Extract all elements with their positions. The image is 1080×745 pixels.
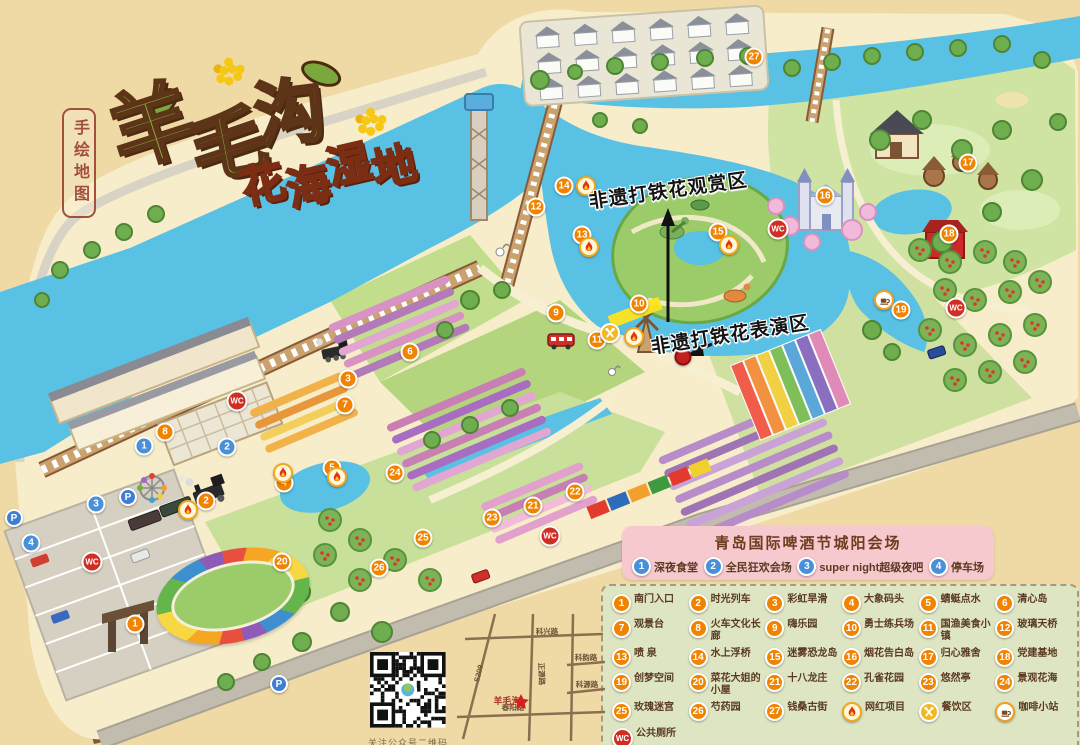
legend-item: 12玻璃天桥 [995, 619, 1068, 642]
beer-item-label: 深夜食堂 [654, 559, 698, 575]
map-marker-2[interactable]: 2 [197, 492, 216, 511]
map-marker-27[interactable]: 27 [745, 48, 764, 67]
map-marker-p-P[interactable]: P [119, 488, 137, 506]
legend-item-label: 菜花大姐的小屋 [711, 673, 762, 696]
map-marker-flame[interactable] [579, 237, 599, 257]
map-marker-flame[interactable] [719, 235, 739, 255]
legend-box: 1南门入口2时光列车3彩虹旱滑4大象码头5蜻蜓点水6清心岛7观景台8火车文化长廊… [601, 584, 1079, 745]
legend-item: 网红项目 [842, 702, 915, 722]
legend-item-label: 网红项目 [865, 702, 905, 714]
map-marker-10[interactable]: 10 [630, 295, 649, 314]
legend-item-label: 喷 泉 [634, 648, 657, 660]
map-marker-wc-WC[interactable]: WC [946, 298, 967, 319]
legend-item: 19创梦空间 [612, 673, 685, 696]
legend-item-label: 时光列车 [711, 594, 751, 606]
legend-item-label: 芍药园 [711, 702, 741, 714]
beer-festival-items: 1深夜食堂2全民狂欢会场3super night超级夜吧4停车场 [632, 557, 984, 576]
map-marker-16[interactable]: 16 [816, 187, 835, 206]
road-label: 科兴路 [536, 626, 559, 636]
beer-festival-item: 4停车场 [929, 557, 984, 576]
road-label: 正源路 [537, 662, 548, 685]
legend-item: 18党建基地 [995, 648, 1068, 667]
legend-item-label: 迷雾恐龙岛 [787, 648, 837, 660]
legend-item: 3彩虹旱滑 [765, 594, 838, 613]
legend-item-label: 归心雅舍 [941, 648, 981, 660]
map-marker-24[interactable]: 24 [386, 464, 405, 483]
qr-code[interactable] [368, 652, 448, 733]
legend-item-label: 大象码头 [864, 594, 904, 606]
map-marker-1[interactable]: 1 [126, 615, 145, 634]
legend-item: WC公共厕所 [612, 728, 685, 745]
legend-item-label: 钱桑古街 [787, 702, 827, 714]
road-label: 科源路 [576, 679, 599, 689]
map-marker-20[interactable]: 20 [273, 553, 292, 572]
beer-festival-item: 2全民狂欢会场 [704, 557, 792, 576]
map-marker-flame[interactable] [273, 463, 293, 483]
beer-festival-item: 3super night超级夜吧 [797, 557, 923, 576]
beer-festival-box: 青岛国际啤酒节城阳会场 1深夜食堂2全民狂欢会场3super night超级夜吧… [622, 526, 994, 580]
map-marker-12[interactable]: 12 [527, 198, 546, 217]
beer-item-label: 停车场 [951, 559, 984, 575]
map-marker-23[interactable]: 23 [483, 509, 502, 528]
map-marker-blue-2[interactable]: 2 [218, 438, 237, 457]
legend-item: 1南门入口 [612, 594, 685, 613]
legend-item-label: 水上浮桥 [711, 648, 751, 660]
legend-item: 27钱桑古街 [765, 702, 838, 722]
legend-item-label: 国渔美食小镇 [941, 619, 992, 642]
legend-item: 7观景台 [612, 619, 685, 642]
legend-item-label: 党建基地 [1017, 648, 1057, 660]
legend-item-label: 蜻蜓点水 [941, 594, 981, 606]
beer-festival-item: 1深夜食堂 [632, 557, 698, 576]
legend-item: 17归心雅舍 [919, 648, 992, 667]
legend-item-label: 火车文化长廊 [711, 619, 762, 642]
legend-grid: 1南门入口2时光列车3彩虹旱滑4大象码头5蜻蜓点水6清心岛7观景台8火车文化长廊… [612, 594, 1068, 745]
legend-item: 20菜花大姐的小屋 [689, 673, 762, 696]
legend-item: 4大象码头 [842, 594, 915, 613]
legend-item: 2时光列车 [689, 594, 762, 613]
road-label: S209 [472, 664, 485, 683]
map-marker-7[interactable]: 7 [336, 396, 355, 415]
legend-item: 5蜻蜓点水 [919, 594, 992, 613]
map-marker-flame[interactable] [178, 500, 198, 520]
legend-item: 咖啡小站 [995, 702, 1068, 722]
legend-item-label: 勇士练兵场 [864, 619, 914, 631]
hand-drawn-map-label: 手绘地图 [62, 108, 96, 218]
map-marker-18[interactable]: 18 [940, 225, 959, 244]
legend-item: 22孔雀花园 [842, 673, 915, 696]
legend-item-label: 景观花海 [1017, 673, 1057, 685]
legend-item: 21十八龙庄 [765, 673, 838, 696]
road-label: 科韵路 [575, 652, 598, 662]
legend-item-label: 玫瑰迷宫 [634, 702, 674, 714]
map-screenshot: 1234567891011121314151617181920212223242… [0, 0, 1080, 745]
map-marker-coffee[interactable] [874, 290, 894, 310]
map-marker-8[interactable]: 8 [156, 423, 175, 442]
map-marker-wc-WC[interactable]: WC [768, 219, 789, 240]
legend-item-label: 烟花告白岛 [864, 648, 914, 660]
legend-item: 9嗨乐园 [765, 619, 838, 642]
map-marker-flame[interactable] [327, 467, 347, 487]
map-marker-p-P[interactable]: P [270, 675, 288, 693]
map-marker-food[interactable] [600, 323, 620, 343]
legend-item: 13喷 泉 [612, 648, 685, 667]
beer-item-label: 全民狂欢会场 [726, 559, 792, 575]
map-marker-3[interactable]: 3 [339, 370, 358, 389]
legend-item: 23悠然亭 [919, 673, 992, 696]
map-marker-wc-WC[interactable]: WC [227, 391, 248, 412]
legend-item: 25玫瑰迷宫 [612, 702, 685, 722]
legend-item: 11国渔美食小镇 [919, 619, 992, 642]
legend-item-label: 彩虹旱滑 [787, 594, 827, 606]
map-marker-blue-4[interactable]: 4 [22, 534, 41, 553]
map-marker-flame[interactable] [624, 327, 644, 347]
legend-item-label: 孔雀花园 [864, 673, 904, 685]
legend-item-label: 清心岛 [1017, 594, 1047, 606]
map-marker-17[interactable]: 17 [959, 154, 978, 173]
legend-item: 24景观花海 [995, 673, 1068, 696]
legend-item-label: 嗨乐园 [787, 619, 817, 631]
legend-item: 14水上浮桥 [689, 648, 762, 667]
map-marker-wc-WC[interactable]: WC [540, 526, 561, 547]
map-marker-19[interactable]: 19 [892, 301, 911, 320]
map-marker-blue-1[interactable]: 1 [135, 437, 154, 456]
legend-item: 8火车文化长廊 [689, 619, 762, 642]
legend-item: 16烟花告白岛 [842, 648, 915, 667]
mini-location-map: 科兴路 科韵路 科源路 春阳路 正源路 S209 羊毛沟 [455, 612, 605, 744]
legend-item: 15迷雾恐龙岛 [765, 648, 838, 667]
legend-item: 10勇士练兵场 [842, 619, 915, 642]
beer-festival-title: 青岛国际啤酒节城阳会场 [632, 532, 984, 553]
legend-item-label: 观景台 [634, 619, 664, 631]
legend-item: 26芍药园 [689, 702, 762, 722]
map-marker-26[interactable]: 26 [370, 559, 389, 578]
map-marker-9[interactable]: 9 [547, 304, 566, 323]
legend-item-label: 公共厕所 [636, 728, 676, 740]
qr-caption: 关注公众号二维码 [368, 736, 448, 745]
map-marker-22[interactable]: 22 [566, 483, 585, 502]
map-marker-25[interactable]: 25 [414, 529, 433, 548]
beer-item-label: super night超级夜吧 [819, 559, 923, 575]
legend-item-label: 悠然亭 [941, 673, 971, 685]
map-marker-21[interactable]: 21 [524, 497, 543, 516]
legend-item-label: 南门入口 [634, 594, 674, 606]
map-marker-wc-WC[interactable]: WC [82, 552, 103, 573]
legend-item: 6清心岛 [995, 594, 1068, 613]
qr-code-block: 关注公众号二维码 [368, 652, 448, 745]
legend-item-label: 咖啡小站 [1018, 702, 1058, 714]
villa-district [519, 5, 768, 106]
map-marker-6[interactable]: 6 [401, 343, 420, 362]
legend-item-label: 十八龙庄 [787, 673, 827, 685]
legend-item-label: 创梦空间 [634, 673, 674, 685]
legend-item-label: 玻璃天桥 [1017, 619, 1057, 631]
map-marker-14[interactable]: 14 [555, 177, 574, 196]
legend-item-label: 餐饮区 [942, 702, 972, 714]
legend-item: 餐饮区 [919, 702, 992, 722]
map-marker-p-P[interactable]: P [5, 509, 23, 527]
map-marker-blue-3[interactable]: 3 [87, 495, 106, 514]
